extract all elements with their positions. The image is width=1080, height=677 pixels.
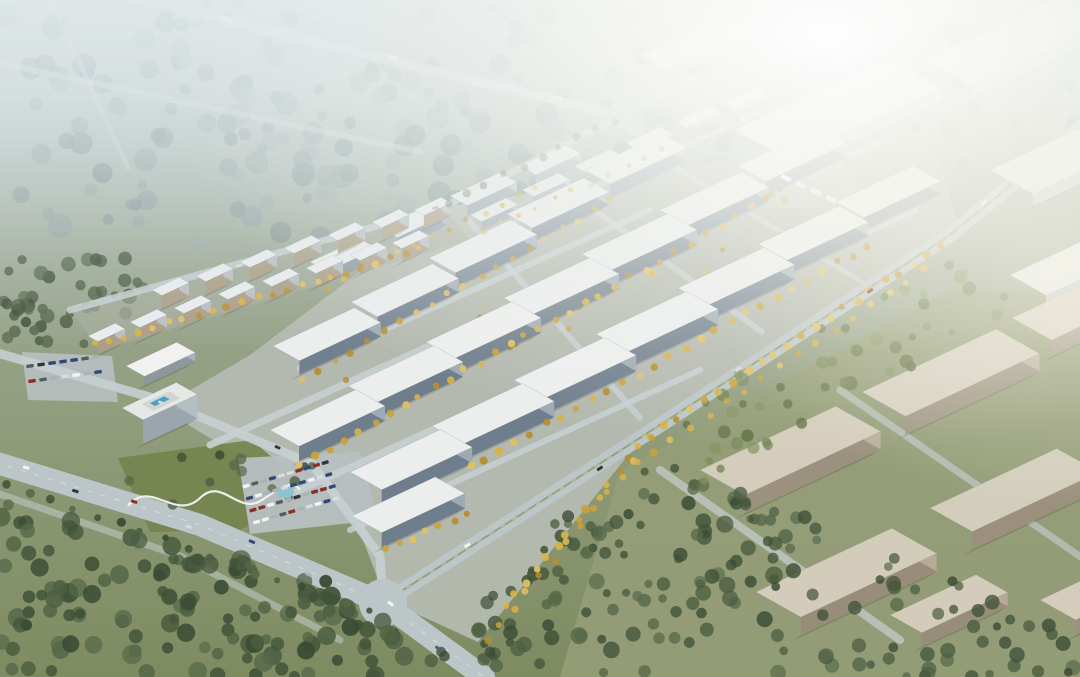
- warm-haze-overlay: [0, 0, 1080, 677]
- scene-svg: [0, 0, 1080, 677]
- screenshot-canvas: [0, 0, 1080, 677]
